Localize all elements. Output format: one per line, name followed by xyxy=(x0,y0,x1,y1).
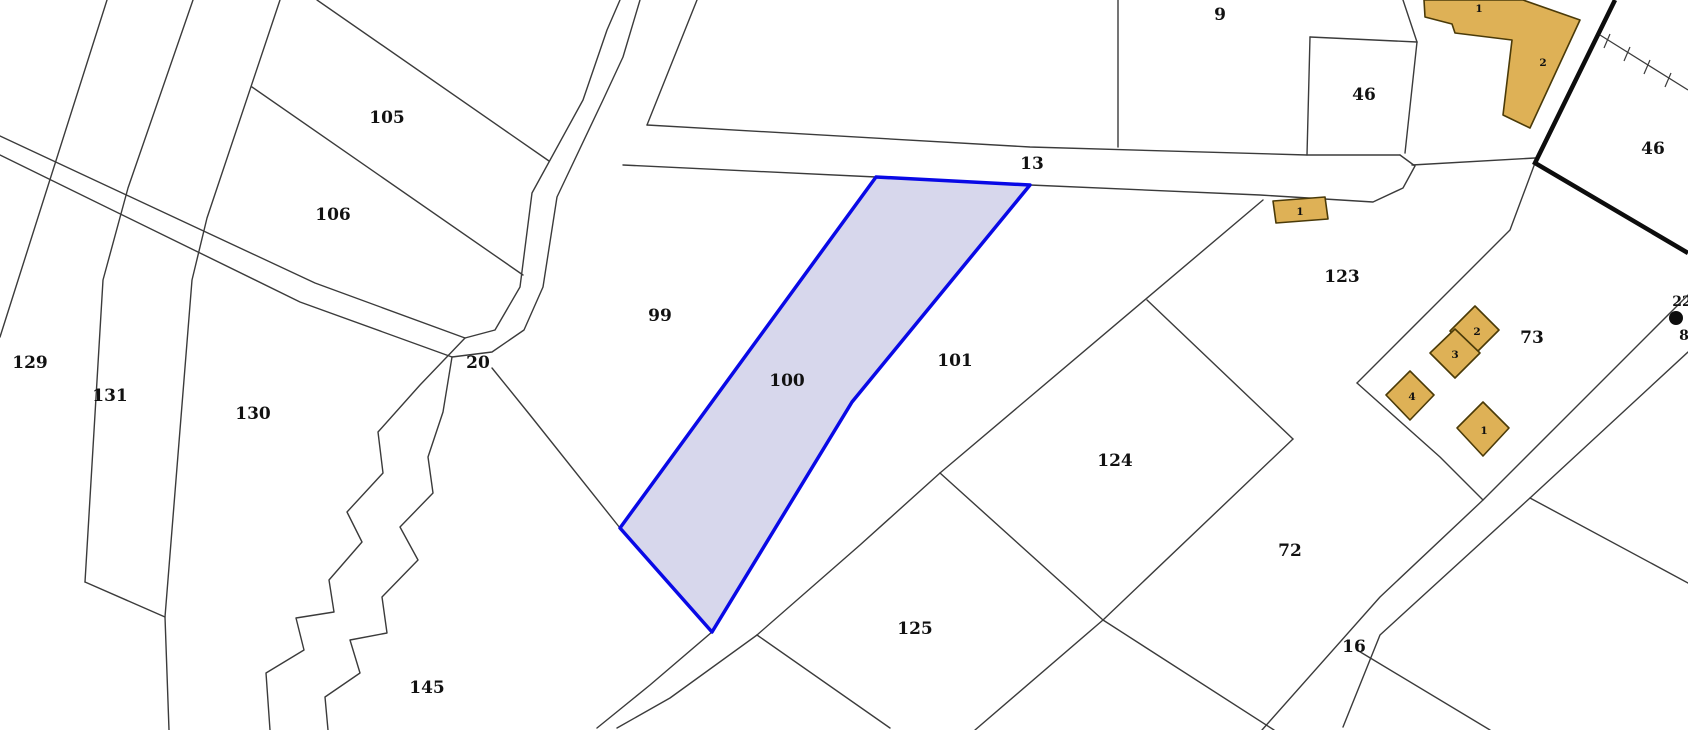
road-edge xyxy=(647,125,1400,155)
boundary-line xyxy=(492,368,620,528)
road-edge xyxy=(647,0,697,125)
boundary-line xyxy=(1412,158,1535,165)
building-label: 2 xyxy=(1473,326,1480,338)
building-label: 4 xyxy=(1408,391,1415,403)
boundary-line xyxy=(85,582,169,730)
boundary-line xyxy=(1403,0,1417,42)
parcel-label-73: 73 xyxy=(1520,328,1544,348)
parcel-label-16: 16 xyxy=(1342,637,1366,657)
road-edge xyxy=(0,155,452,357)
parcel-label-131: 131 xyxy=(92,386,128,406)
boundary-line xyxy=(165,0,280,617)
fence-line xyxy=(1600,34,1688,90)
boundary-line xyxy=(1357,650,1490,730)
boundary-line xyxy=(1310,37,1417,42)
parcel-label-145: 145 xyxy=(409,678,445,698)
stream-edge xyxy=(266,338,465,730)
parcel-label-106: 106 xyxy=(315,205,351,225)
parcel-label-100: 100 xyxy=(769,371,805,391)
cadastral-map-viewport[interactable]: 105 106 129 131 130 20 145 99 100 101 13… xyxy=(0,0,1688,730)
boundary-line xyxy=(317,0,549,161)
edge-label-8: 8 xyxy=(1679,328,1688,344)
parcel-label-124: 124 xyxy=(1097,451,1133,471)
path-edge xyxy=(617,635,757,728)
boundary-line xyxy=(940,200,1263,473)
parcel-label-46: 46 xyxy=(1352,85,1376,105)
boundary-line xyxy=(1405,42,1417,153)
parcel-label-13: 13 xyxy=(1020,154,1044,174)
road-edge xyxy=(1262,295,1688,730)
boundary-line xyxy=(975,439,1293,730)
road-edge xyxy=(1343,352,1688,727)
parcel-label-99: 99 xyxy=(648,306,672,326)
building-label: 1 xyxy=(1296,206,1303,218)
parcel-label-46b: 46 xyxy=(1641,139,1665,159)
boundary-line xyxy=(1147,300,1293,439)
boundary-line xyxy=(757,635,890,728)
parcel-label-130: 130 xyxy=(235,404,271,424)
boundary-line xyxy=(940,473,1274,730)
boundary-line xyxy=(1307,37,1310,155)
road-edge xyxy=(623,165,876,177)
building-label: 1 xyxy=(1475,3,1482,15)
parcel-label-20: 20 xyxy=(466,353,490,373)
buildings xyxy=(1273,0,1580,456)
road-edge xyxy=(1030,155,1415,202)
boundary-line xyxy=(1530,498,1688,583)
parcel-label-72: 72 xyxy=(1278,541,1302,561)
parcel-label-123: 123 xyxy=(1324,267,1360,287)
edge-label-22: 22 xyxy=(1672,294,1688,310)
road-edge xyxy=(0,136,465,338)
parcel-label-101: 101 xyxy=(937,351,973,371)
building xyxy=(1424,0,1580,128)
road-edge xyxy=(452,0,640,357)
map-canvas[interactable]: 105 106 129 131 130 20 145 99 100 101 13… xyxy=(0,0,1688,730)
stream-edge xyxy=(325,357,452,730)
selected-parcel-100[interactable] xyxy=(620,177,1030,632)
parcel-label-129: 129 xyxy=(12,353,48,373)
survey-point-icon xyxy=(1669,311,1683,325)
boundary-line xyxy=(85,0,193,582)
building-label: 3 xyxy=(1451,349,1458,361)
parcel-label-9: 9 xyxy=(1214,5,1226,25)
building-label: 1 xyxy=(1480,425,1487,437)
building-label: 2 xyxy=(1539,57,1546,69)
parcel-label-125: 125 xyxy=(897,619,933,639)
parcel-label-105: 105 xyxy=(369,108,405,128)
boundary-line xyxy=(0,0,107,337)
